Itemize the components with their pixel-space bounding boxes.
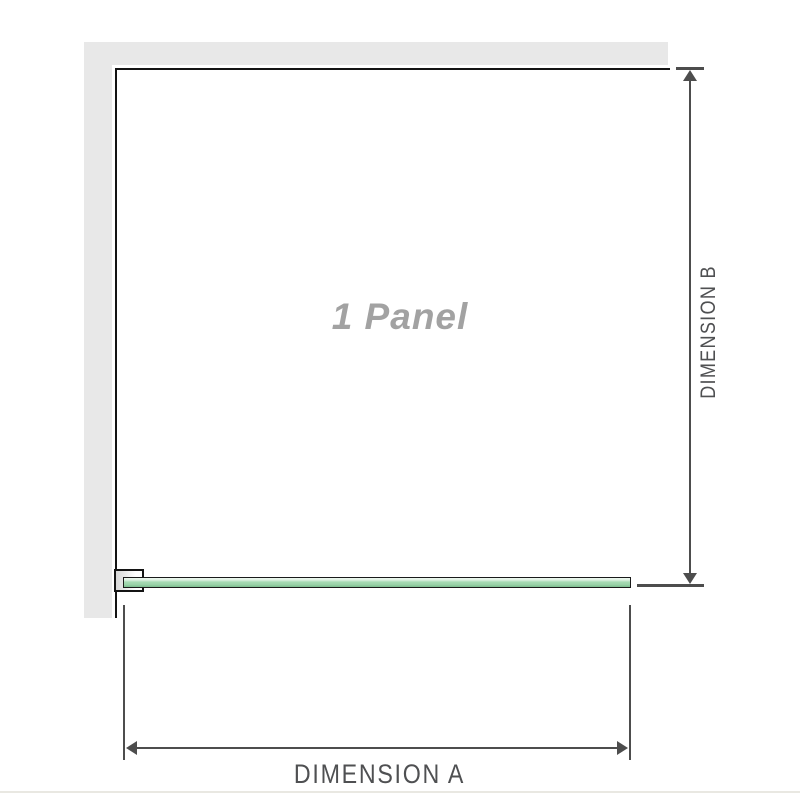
wall-left-band bbox=[84, 42, 112, 618]
diagram-canvas: 1 Panel DIMENSION B DIMENSION A bbox=[0, 0, 800, 800]
dimension-b-bottom-cap bbox=[637, 584, 704, 587]
dimension-a-right-extension bbox=[629, 605, 631, 760]
dimension-a-left-extension bbox=[123, 605, 125, 760]
dimension-b-label-text: DIMENSION B bbox=[697, 265, 721, 399]
dimension-b-line bbox=[689, 78, 691, 577]
dimension-b-label: DIMENSION B bbox=[697, 254, 721, 409]
dimension-a-label: DIMENSION A bbox=[230, 759, 530, 790]
dimension-a-line bbox=[134, 747, 622, 749]
arrow-right-icon bbox=[617, 741, 628, 755]
footer-divider bbox=[0, 791, 800, 793]
panel-count-label: 1 Panel bbox=[250, 296, 550, 338]
arrow-up-icon bbox=[683, 70, 697, 81]
arrow-down-icon bbox=[683, 573, 697, 584]
dimension-a-label-text: DIMENSION A bbox=[294, 759, 465, 790]
glass-panel bbox=[123, 577, 631, 588]
enclosure-left-edge bbox=[115, 68, 117, 618]
enclosure-top-edge bbox=[115, 68, 670, 70]
wall-top-band bbox=[84, 42, 668, 65]
arrow-left-icon bbox=[126, 741, 137, 755]
